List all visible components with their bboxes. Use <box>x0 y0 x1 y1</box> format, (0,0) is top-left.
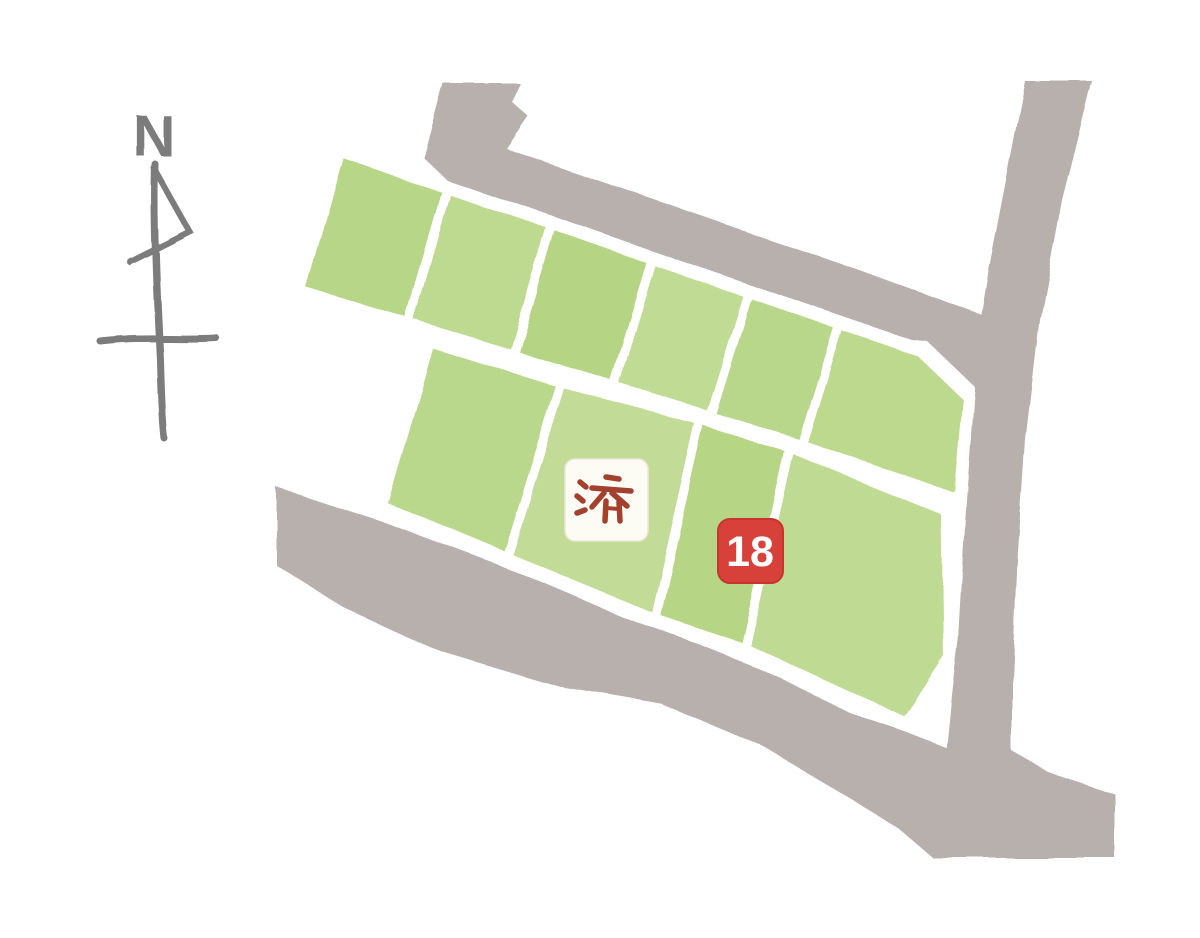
site-plan-map: N 済 <box>0 0 1200 938</box>
sold-badge: 済 <box>565 459 648 541</box>
plot-number-label: 18 <box>726 528 774 576</box>
compass-north-label: N <box>133 104 175 169</box>
compass-arrow <box>100 164 216 438</box>
compass-pole <box>155 164 164 438</box>
compass: N <box>100 104 216 438</box>
site-plan-page: N 済 <box>0 0 1200 938</box>
plot-number-badge: 18 <box>718 519 783 583</box>
compass-pennant <box>130 168 190 262</box>
compass-crossbar <box>100 338 216 341</box>
